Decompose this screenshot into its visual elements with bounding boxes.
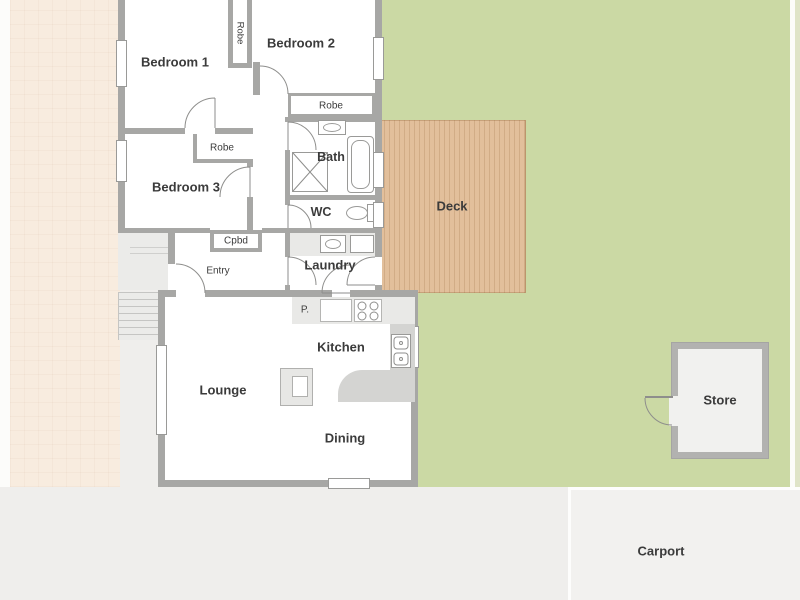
deck-label: Deck xyxy=(436,199,467,214)
store-door-opening xyxy=(669,396,679,426)
room-label-bedroom3: Bedroom 3 xyxy=(152,180,220,195)
room-label-bedroom2: Bedroom 2 xyxy=(267,36,335,51)
carport-label: Carport xyxy=(638,544,685,559)
wall-entry-stub xyxy=(168,233,175,264)
driveway-area xyxy=(10,0,120,487)
wall-hall-top xyxy=(118,228,210,233)
porch-step-line-1 xyxy=(130,247,168,248)
window-bath xyxy=(373,152,384,188)
room-label-bedroom1: Bedroom 1 xyxy=(141,55,209,70)
cupboard-label: Cpbd xyxy=(224,236,248,247)
laundry-trough-icon xyxy=(320,235,346,253)
toilet-icon xyxy=(346,203,374,223)
robe2-label: Robe xyxy=(319,101,343,112)
fireplace-inner xyxy=(292,376,308,397)
kitchen-bench-box xyxy=(320,299,352,322)
floor-plan: Carport Deck Store Robe Robe Robe xyxy=(0,0,800,600)
left-boundary-strip xyxy=(0,0,10,487)
robe1-label: Robe xyxy=(235,22,246,45)
window-lounge xyxy=(156,345,167,435)
window-bed2 xyxy=(373,37,384,80)
robe3-label: Robe xyxy=(210,143,234,154)
room-label-entry: Entry xyxy=(206,266,229,277)
pantry-label: P. xyxy=(301,305,309,316)
wall-living-top-c xyxy=(350,290,415,297)
wall-hall-top-b xyxy=(262,228,285,233)
store-label: Store xyxy=(703,393,736,408)
basin-icon xyxy=(318,120,346,135)
wall-living-left-b xyxy=(158,433,165,487)
wall-living-bottom-a xyxy=(158,480,328,487)
room-label-wc: WC xyxy=(311,205,332,219)
wall-bath-left-a xyxy=(285,117,290,122)
room-label-lounge: Lounge xyxy=(200,383,247,398)
window-bed1 xyxy=(116,40,127,87)
kitchen-sink-icon xyxy=(391,334,411,368)
room-label-dining: Dining xyxy=(325,431,365,446)
window-bed3 xyxy=(116,140,127,182)
wall-upper-left xyxy=(118,0,125,232)
window-wc xyxy=(373,202,384,228)
wall-bed3-right-b xyxy=(247,197,253,233)
entry-porch xyxy=(118,233,168,290)
bathtub-icon xyxy=(347,136,374,193)
stairs xyxy=(118,292,158,340)
right-grass-pale-strip xyxy=(795,0,800,487)
wall-bath-wc-divider xyxy=(290,195,375,200)
room-label-laundry: Laundry xyxy=(304,258,355,273)
room-label-kitchen: Kitchen xyxy=(317,340,365,355)
window-dining xyxy=(328,478,370,489)
kitchen-counter-horizontal xyxy=(338,370,415,402)
wall-bed2-door-pillar xyxy=(253,62,260,95)
cooktop-icon xyxy=(354,299,382,322)
wall-living-top-b xyxy=(205,290,332,297)
laundry-deck-door-opening xyxy=(375,257,382,285)
room-label-bath: Bath xyxy=(317,150,345,164)
store-door-leaf xyxy=(645,396,673,398)
wall-bed1-bottom-a xyxy=(118,128,185,134)
wall-living-left-a xyxy=(158,290,165,347)
laundry-appliance xyxy=(350,235,374,253)
porch-step-line-2 xyxy=(130,253,168,254)
